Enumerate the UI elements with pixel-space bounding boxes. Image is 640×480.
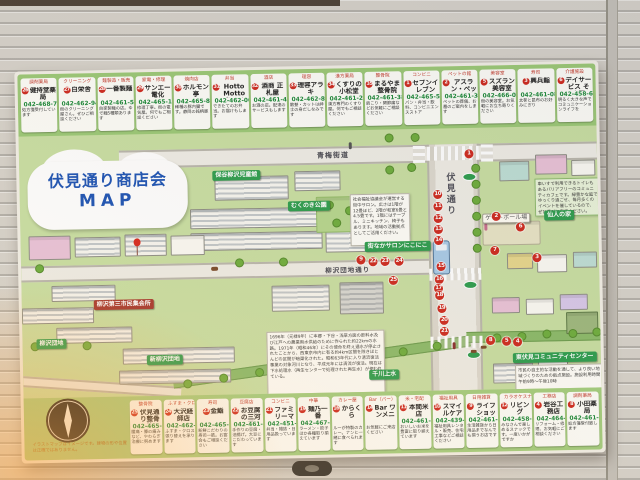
tree	[183, 379, 192, 388]
shop-category: 日用雑貨	[470, 396, 493, 401]
label-gateball: ゲートボール場	[482, 213, 530, 224]
label-senkawa: 千川上水	[369, 369, 399, 380]
shop-name: アスラン・ペットメモリアル	[450, 79, 477, 94]
shop-category: 弁当	[217, 76, 244, 81]
shop-category: 福祉用具	[437, 396, 460, 401]
shop-card: カラオケスナック 12 リビング 042-458-8365 みなさんで楽しめるス…	[500, 393, 533, 448]
building	[170, 235, 204, 256]
shop-category: コンビニ	[408, 73, 435, 78]
shop-description: 自家製麺の店。ゆで麺5種類あります	[99, 106, 134, 121]
label-sennin: 仙人の家	[544, 210, 574, 221]
shop-name: 岩谷工務店	[542, 401, 564, 415]
shop-category: 焼肉店	[178, 77, 205, 82]
shop-number-badge: 27	[63, 87, 70, 94]
shop-card: 中華 19 麺乃一番 042-467-2939 ラーメン・餃子ほか各種取り揃えて…	[298, 397, 331, 452]
shop-description: 福祉用具レンタル・販売、住宅工事などご相談ください	[434, 424, 464, 444]
shop-description: 手作りの豆腐・油揚げ。大豆にこだわっています	[232, 428, 262, 448]
shop-category: 調剤薬局	[25, 80, 52, 85]
shop-category: コンビニ	[268, 399, 291, 404]
building	[560, 294, 588, 311]
dog-figure	[481, 346, 487, 349]
pedestrian-figure	[484, 224, 487, 231]
shop-description: 新鮮こだわりの寿司一筋。お宴会もご相談ください	[198, 429, 228, 449]
shop-category: 整骨院	[134, 402, 157, 407]
label-community-center: 東伏見コミュニティセンター	[513, 352, 597, 364]
label-shukaijo: 柳沢第三市民集会所	[94, 299, 154, 310]
top-card-row: 調剤薬局 26 健持堂薬局 042-468-7788 処方箋受付しています クリ…	[17, 63, 596, 136]
shop-name: Hotto Motto（ほっともっと）	[221, 83, 248, 98]
shop-description: 処方箋受付致します	[568, 421, 598, 431]
shop-description: 街の美容室。お気軽にお立ち寄りください	[481, 99, 516, 114]
red-balloon	[134, 238, 141, 246]
crosswalk	[413, 145, 425, 163]
shop-category: 理容	[293, 75, 320, 80]
shop-number-badge: 16	[333, 405, 340, 412]
shop-number-badge: 29	[136, 85, 143, 92]
map-marker: 5	[502, 337, 511, 346]
map-disclaimer-text: イラストマップはイメージです。建物の形や位置は正確ではありません。	[32, 441, 128, 454]
shop-number-badge: 6	[557, 77, 564, 84]
fushimi-dori-label: 伏見通り	[443, 172, 457, 216]
shop-number-badge: 14	[366, 405, 373, 412]
shop-card: 麺製造・販売 28 一番製麺 042-461-5163 自家製麺の店。ゆで麺5種…	[97, 76, 134, 131]
shop-category: 介護施設	[561, 70, 588, 75]
building	[56, 326, 132, 343]
shop-number-badge: 23	[202, 408, 209, 415]
sign-title-map: MAP	[28, 189, 188, 213]
building	[573, 251, 597, 267]
shop-card: 工務店 4 岩谷工務店 042-464-0694 リフォーム・修理、お気軽にご相…	[533, 392, 566, 447]
pedestrian-figure	[453, 342, 456, 349]
building	[499, 161, 529, 182]
map-marker: 3	[532, 253, 541, 262]
building	[339, 282, 384, 315]
shop-category: カレー屋	[336, 398, 359, 403]
gateball-field	[482, 221, 540, 246]
shop-category: 中華	[302, 399, 325, 404]
shop-description: 弁当・雑誌・日用品扱っています	[266, 427, 296, 442]
shop-number-badge: 30	[175, 84, 182, 91]
shop-name: スズラン美容室	[489, 78, 516, 93]
map-marker: 9	[356, 255, 365, 264]
shop-description: 生活雑貨から日用品までなんでも揃うお店です	[468, 423, 498, 438]
map-marker: 1	[464, 149, 473, 158]
tree	[385, 133, 394, 142]
tree	[411, 133, 420, 142]
shop-number-badge: 1	[404, 80, 411, 87]
map-marker: 25	[389, 276, 398, 285]
shop-number-badge: 33	[289, 82, 296, 89]
shop-card: 理容 33 理容アラキ 042-462-8923 散髪・カットは紳士の身だしなみ…	[288, 73, 325, 128]
shop-name: くすりの小松堂	[336, 81, 363, 96]
label-yagisawa-danchi: 柳沢団地	[36, 339, 66, 350]
shop-name: 伏見通り整骨院	[139, 409, 161, 423]
shop-description: ルーが特製のカレー。ナンと一緒に食べられます	[333, 426, 363, 446]
shop-number-badge: 28	[98, 86, 105, 93]
shop-card: ふすま・クロス 24 大沢経師店 042-462-3461 ふすま・クロス張り替…	[163, 399, 196, 454]
label-shin-yagisawa: 新柳沢団地	[147, 354, 183, 365]
tree	[407, 163, 416, 172]
building	[119, 369, 231, 385]
shop-card: ペットの館 2 アスラン・ペットメモリアル 042-461-3319 ペットの葬…	[441, 70, 478, 125]
salon-info-text: 社会福祉協議会が運営する街中サロン。広さは1階が12畳ほど、2階が和室6畳と4.…	[353, 196, 408, 236]
bottom-card-row: 整骨院 25 伏見通り整骨院 042-465-5552 腰痛・膝の痛みなど、やわ…	[130, 391, 600, 454]
shop-category: 豆腐店	[235, 400, 258, 405]
shop-card: カレー屋 16 からくら ルーが特製のカレー。ナンと一緒に食べられます	[331, 396, 364, 451]
shop-name: 本間米店	[408, 404, 430, 418]
label-mukunoki: むくのき公園	[288, 201, 330, 212]
shop-number-badge: 4	[534, 402, 541, 409]
shop-number-badge: 2	[442, 79, 449, 86]
shop-number-badge: 31	[213, 84, 220, 91]
building	[526, 298, 554, 315]
shop-number-badge: 26	[22, 87, 29, 94]
shop-card: 介護施設 6 デイサービス そよ園 042-458-6681 明るく大きな声でコ…	[556, 68, 593, 123]
shop-number-badge: 11	[400, 404, 407, 411]
shop-card: コンビニ 21 ファミリーマート 042-451-5423 弁当・雑誌・日用品扱…	[264, 397, 297, 452]
tree	[471, 180, 480, 189]
shop-number-badge: 10	[434, 404, 441, 411]
tree	[399, 347, 408, 356]
map-marker: 12	[434, 214, 443, 223]
shop-description: リフォーム・修理、お気軽にご相談ください	[535, 422, 565, 437]
shop-description: お気軽にご来店ください	[367, 425, 397, 435]
shop-category: 美容室	[484, 71, 511, 76]
building	[271, 285, 329, 312]
shop-card: 整骨院 35 まるやま整骨院 042-461-3891 肩こり・関節痛などお気軽…	[365, 71, 402, 126]
shop-name: 大沢経師店	[172, 408, 194, 422]
map-disclaimer: イラストマップはイメージです。建物の形や位置は正確ではありません。	[32, 441, 128, 458]
building	[190, 231, 322, 252]
shop-number-badge: 5	[481, 79, 488, 86]
building	[74, 237, 120, 258]
shop-number-badge: 24	[164, 409, 171, 416]
shop-card: 漢方薬局 34 くすりの小松堂 042-461-2532 漢方専門のくすり屋。何…	[326, 72, 363, 127]
shop-category: カラオケスナック	[504, 395, 527, 400]
photo-of-map-signboard: 社会福祉協議会が運営する街中サロン。広さは1階が12畳ほど、2階が和室6畳と4.…	[0, 0, 640, 480]
bottom-band: イラストマップはイメージです。建物の形や位置は正確ではありません。 整骨院 25…	[24, 387, 603, 460]
shop-number-badge: 19	[299, 406, 306, 413]
building	[507, 253, 533, 269]
building	[535, 154, 567, 175]
shop-name: ファミリーマート	[273, 406, 295, 420]
senkawa-history-text: 1696年（元禄9年）に本郷・下谷・浅草方面の飲料水及び江戸への農業用水供給のた…	[269, 333, 382, 380]
shop-card: 酒店 32 酒商 正札屋 042-461-4968 お酒の店。配達のサービスもし…	[250, 73, 287, 128]
shop-name: ライフショップワイルド	[475, 402, 497, 416]
shop-number-badge: 35	[366, 81, 373, 88]
pedestrian-figure	[349, 142, 352, 149]
shop-description: 街のクリーニング屋さん。ぜひご相談ください	[60, 107, 95, 122]
shop-card: 整骨院 25 伏見通り整骨院 042-465-5552 腰痛・膝の痛みなど、やわ…	[130, 400, 163, 455]
shop-name: セブンイレブン	[412, 80, 439, 95]
shop-card: クリーニング 27 白栄舎 042-462-9424 街のクリーニング屋さん。ぜ…	[59, 77, 96, 132]
shop-name: サンエー電化	[144, 85, 171, 100]
shop-number-badge: 9	[467, 403, 474, 410]
shop-card: 寿司 3 興兵鮨 042-461-0839 太巻と昆布のお好みにぎり	[518, 68, 555, 123]
tree	[472, 228, 481, 237]
shop-number-badge: 25	[131, 409, 138, 416]
vent-cap	[305, 465, 319, 472]
shop-description: ふすま・クロス張り替えを承ります	[165, 429, 195, 444]
map-marker: 4	[513, 337, 522, 346]
shop-description: 肩こり・関節痛などお気軽にご相談ください	[366, 101, 401, 116]
shop-number-badge: 34	[328, 81, 335, 88]
building	[492, 297, 520, 314]
shop-name: ホルモン亭	[183, 84, 210, 99]
shop-card: 弁当 31 Hotto Motto（ほっともっと） 042-462-0047 で…	[212, 74, 249, 129]
shop-description: 漢方専門のくすり屋。何でもご相談ください	[328, 102, 363, 117]
shop-card: 寿司 23 金鮨 042-465-9466 新鮮こだわりの寿司一筋。お宴会もご相…	[197, 399, 230, 454]
wall-panel-gap	[0, 0, 340, 6]
shop-category: 寿司	[523, 70, 550, 75]
tree	[255, 368, 264, 377]
crosswalk	[481, 143, 493, 161]
shop-card: 豆腐店 22 お豆腐の三河屋 042-461-4966 手作りの豆腐・油揚げ。大…	[231, 398, 264, 453]
shop-category: 米・宅配	[403, 397, 426, 402]
shop-description: おいしいお米を豊富に取り揃えています	[400, 425, 430, 440]
tree	[592, 327, 601, 336]
shop-category: 漢方薬局	[331, 74, 358, 79]
danchi-dori-label: 柳沢団地通り	[325, 264, 370, 275]
shop-number-badge: 12	[501, 402, 508, 409]
dog-figure	[471, 350, 477, 353]
shop-name: からくら	[341, 405, 363, 419]
shop-name: 小田薬局	[576, 401, 598, 415]
shop-card: 日用雑貨 9 ライフショップワイルド 042-461-2766 生活雑貨から日用…	[466, 393, 499, 448]
shop-description: 修理丁寧。街の電気屋。何でもご相談ください	[137, 106, 172, 121]
shop-description: 処方箋受付しています	[22, 108, 56, 118]
shopping-street-map-sign: 社会福祉協議会が運営する街中サロン。広さは1階が12畳ほど、2階が和室6畳と4.…	[14, 60, 605, 463]
map-marker: 11	[433, 202, 442, 211]
shop-card: 調剤薬局 8 小田薬局 042-461-8559 処方箋受付致します	[567, 391, 600, 446]
shop-name: リビング	[509, 402, 531, 416]
shop-category: ペットの館	[446, 72, 473, 77]
shop-name: 健持堂薬局	[30, 87, 57, 102]
building	[22, 307, 94, 324]
building	[28, 236, 70, 261]
shop-card: 焼肉店 30 ホルモン亭 042-465-8766 稀種の豚内臓です。静岡の銘柄…	[173, 75, 210, 130]
shop-name: 白栄舎	[71, 86, 91, 100]
building	[124, 234, 166, 257]
shop-category: Bar（バー）	[369, 397, 392, 402]
shop-name: デイサービス そよ園	[565, 77, 592, 92]
wall-vent	[292, 461, 332, 476]
shop-description: ラーメン・餃子ほか各種取り揃えています	[299, 427, 329, 442]
tree	[385, 165, 394, 174]
shop-card: 美容室 5 スズラン美容室 042-466-0696 街の美容室。お気軽にお立ち…	[480, 69, 517, 124]
shop-name: お豆腐の三河屋	[240, 407, 262, 421]
shop-category: 調剤薬局	[571, 394, 594, 399]
building	[294, 170, 340, 191]
shop-description: みなさんで楽しめるスナックです。一度いかがですか	[501, 423, 531, 443]
shop-card: 家電・修理 29 サンエー電化 042-465-1077 修理丁寧。街の電気屋。…	[135, 76, 172, 131]
shop-card: 米・宅配 11 本間米店 042-461-2721 おいしいお米を豊富に取り揃え…	[399, 395, 432, 450]
shop-description: 太巻と昆布のお好みにぎり	[519, 98, 553, 108]
shop-category: 整骨院	[370, 73, 397, 78]
shop-description: 散髪・カットは紳士の身だしなみです	[290, 103, 325, 118]
tree	[471, 164, 480, 173]
shop-description: 稀種の豚内臓です。静岡の銘柄豚	[175, 105, 209, 115]
shop-name: 興兵鮨	[530, 77, 550, 91]
shop-number-badge: 3	[522, 78, 529, 85]
ome-kaido-label: 青梅街道	[317, 150, 349, 161]
map-title-cloud: 伏見通り商店会 MAP	[27, 151, 188, 230]
dog-figure	[211, 267, 218, 271]
shop-category: ふすま・クロス	[168, 401, 191, 406]
label-jidokan: 保谷柳沢児童館	[212, 170, 260, 181]
shop-name: 理容アラキ	[297, 82, 324, 97]
shop-name: 一番製麺	[106, 85, 132, 99]
shop-category: クリーニング	[63, 79, 90, 84]
shop-name: Bar ワンメニー	[374, 404, 396, 418]
shop-card: Bar（バー） 14 Bar ワンメニー お気軽にご来店ください	[365, 395, 398, 450]
salon-info-box: 社会福祉協議会が運営する街中サロン。広さは1階が12畳ほど、2階が和室6畳と4.…	[350, 193, 411, 246]
shop-number-badge: 32	[251, 83, 258, 90]
shop-description: 明るく大きな声でコミュニケーションライフを	[558, 98, 593, 113]
building	[571, 160, 595, 176]
tree	[35, 264, 44, 273]
shop-description: お酒の店。配達のサービスもします	[252, 103, 286, 113]
shop-name: まるやま整骨院	[374, 80, 401, 95]
sign-face: 社会福祉協議会が運営する街中サロン。広さは1階が12畳ほど、2階が和室6畳と4.…	[17, 63, 602, 460]
shop-description: パン・弁当・飲料、コンビニエンスストア	[405, 100, 440, 115]
shop-number-badge: 8	[568, 401, 575, 408]
shop-category: 家電・修理	[140, 78, 167, 83]
tree	[473, 244, 482, 253]
compass-icon	[46, 398, 91, 443]
shop-name: 酒商 正札屋	[259, 82, 286, 97]
map-marker: 15	[437, 262, 446, 271]
shop-name: 麺乃一番	[307, 406, 329, 420]
label-salon: 街なかサロンにこにこ	[365, 241, 431, 252]
sign-title: 伏見通り商店会	[27, 169, 187, 192]
shop-name: 金鮨	[210, 408, 223, 422]
community-info-text: 市民の自主的な活動を通して、より良い地域づくりのための拠点施設。施設利用時間 午…	[518, 366, 601, 384]
shop-number-badge: 21	[265, 407, 272, 414]
senkawa-history-box: 1696年（元禄9年）に本郷・下谷・浅草方面の飲料水及び江戸への農業用水供給のた…	[266, 330, 385, 396]
map-marker: 8	[486, 336, 495, 345]
shop-category: 工務店	[538, 394, 561, 399]
shop-category: 酒店	[255, 76, 282, 81]
shop-number-badge: 22	[232, 407, 239, 414]
wall-joint-strip	[606, 0, 618, 480]
shop-description: 腰痛・膝の痛みなど、やわらぎ治療に努めます	[131, 430, 161, 445]
map-marker: 7	[490, 246, 499, 255]
shop-description: できたてのお弁当。お届けもします	[213, 104, 248, 119]
map-marker: 6	[516, 222, 525, 231]
shop-category: 麺製造・販売	[102, 78, 129, 83]
map-marker: 16	[435, 275, 444, 284]
shop-name: スマイルケア	[442, 403, 464, 417]
shop-card: 調剤薬局 26 健持堂薬局 042-468-7788 処方箋受付しています	[20, 78, 57, 133]
shop-description: ペットの葬儀、お墓のご案内をします	[443, 100, 478, 115]
shop-category: 寿司	[201, 401, 224, 406]
shop-card: コンビニ 1 セブンイレブン 042-465-5711 パン・弁当・飲料、コンビ…	[403, 70, 440, 125]
shop-card: 福祉用具 10 スマイルケア 042-439-6544 福祉用具レンタル・販売、…	[432, 394, 465, 449]
